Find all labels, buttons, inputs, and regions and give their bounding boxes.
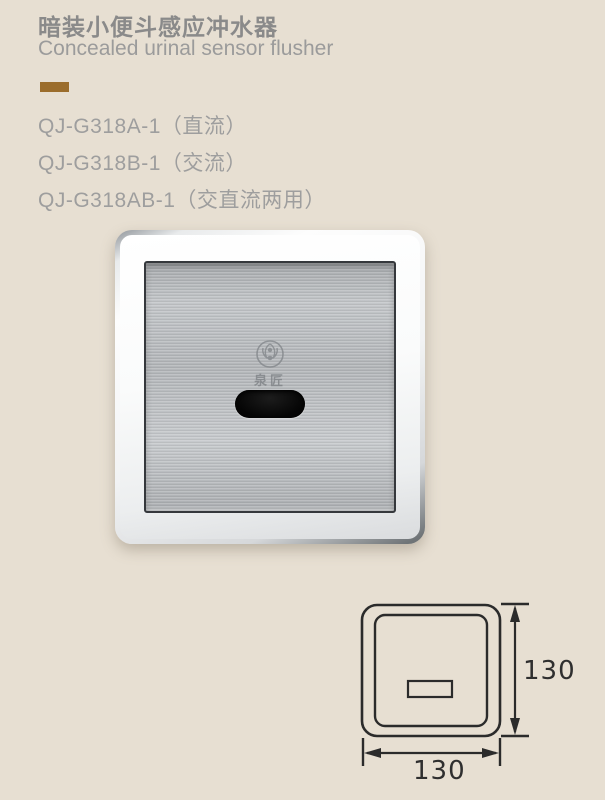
width-arrow-left-icon [364,748,381,758]
brand-name-zh: 泉匠 [146,370,394,389]
drawing-inner-square [375,615,487,726]
model-item-a: QJ-G318A-1（直流） [38,108,326,145]
chrome-frame: 泉匠 QUANJIANG [120,235,420,539]
height-arrow-up-icon [510,605,520,622]
dimension-drawing: 130 130 [350,588,605,800]
product-title-en: Concealed urinal sensor flusher [38,37,333,61]
catalog-page: 暗装小便斗感应冲水器 Concealed urinal sensor flush… [0,0,605,800]
phoenix-logo-icon [255,339,285,369]
brushed-steel-plate: 泉匠 QUANJIANG [144,261,396,513]
product-photo: 泉匠 QUANJIANG [115,230,425,544]
drawing-sensor-rect [408,681,452,697]
width-arrow-right-icon [482,748,499,758]
height-dimension-label: 130 [523,656,576,686]
model-item-ab: QJ-G318AB-1（交直流两用） [38,182,326,219]
width-dimension-label: 130 [413,756,466,786]
infrared-sensor-window [235,390,305,418]
height-arrow-down-icon [510,718,520,735]
model-list: QJ-G318A-1（直流） QJ-G318B-1（交流） QJ-G318AB-… [38,108,326,219]
drawing-outer-square [362,605,500,736]
accent-dash [40,82,69,92]
brand-logo: 泉匠 QUANJIANG [146,339,394,396]
model-item-b: QJ-G318B-1（交流） [38,145,326,182]
